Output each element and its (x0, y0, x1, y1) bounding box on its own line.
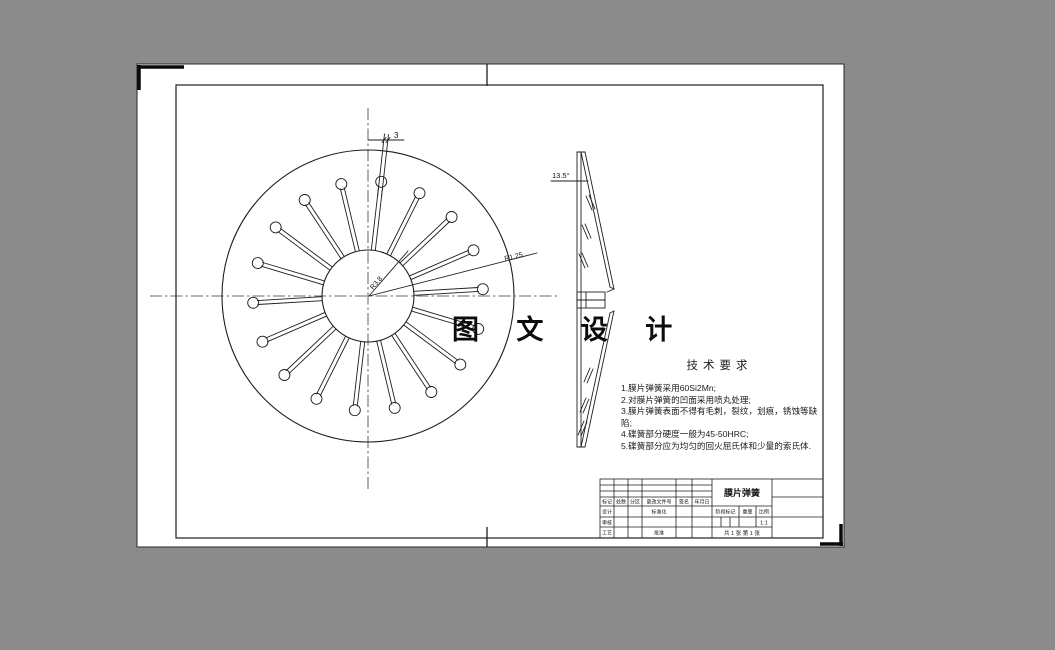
watermark-text: 图 文 设 计 (452, 308, 686, 347)
revision-header-date: 年月日 (694, 499, 709, 506)
revision-header-count: 处数 (616, 499, 626, 506)
role-approve: 批准 (654, 530, 664, 537)
viewer-canvas: { "colors": { "background": "#8b8b8b", "… (0, 0, 1055, 650)
scale-header: 比例 (759, 509, 769, 516)
tech-requirements-title: 技术要求 (621, 357, 818, 373)
tech-requirement-item: 5.碟簧部分应为均匀的回火屈氏体和少量的索氏体. (621, 441, 818, 453)
revision-header-zone: 分区 (630, 499, 640, 506)
slot-width-label: 3 (394, 131, 399, 140)
role-standardize: 标准化 (651, 509, 666, 516)
part-name: 膜片弹簧 (723, 487, 760, 498)
role-process: 工艺 (602, 531, 612, 537)
tech-requirement-item: 1.膜片弹簧采用60Si2Mn; (621, 383, 818, 395)
revision-header-sign: 签名 (679, 499, 689, 506)
revision-header-mark: 标记 (602, 499, 612, 506)
tech-requirement-item: 2.对膜片弹簧的凹面采用喷丸处理; (621, 395, 818, 407)
stage-header: 阶段标记 (715, 509, 735, 516)
scale-value: 1:1 (760, 521, 768, 527)
tech-requirement-item: 3.膜片弹簧表面不得有毛刺，裂纹，划痕，锈蚀等缺陷; (621, 406, 818, 429)
paper-sheet (137, 64, 844, 547)
tech-requirement-item: 4.碟簧部分硬度一般为45-50HRC; (621, 429, 818, 441)
tech-requirements: 技术要求 1.膜片弹簧采用60Si2Mn; 2.对膜片弹簧的凹面采用喷丸处理; … (621, 357, 818, 452)
weight-header: 重量 (742, 509, 752, 516)
cone-angle-label: 13.5° (552, 171, 570, 180)
revision-header-docno: 更改文件号 (646, 499, 671, 506)
role-design: 设计 (602, 509, 612, 516)
role-check: 审核 (602, 520, 612, 527)
sheet-info: 共 1 张 第 1 张 (724, 529, 760, 537)
